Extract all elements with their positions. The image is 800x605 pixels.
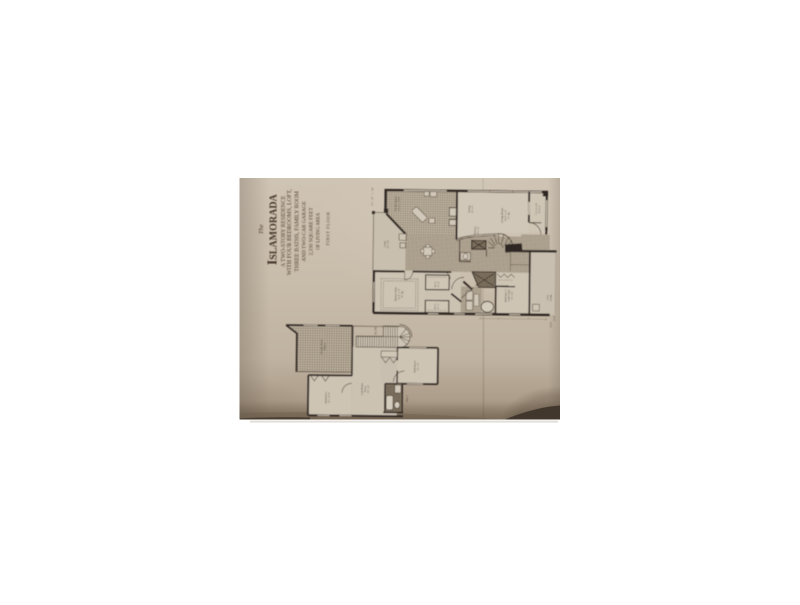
- svg-text:2-Car: 2-Car: [547, 295, 549, 300]
- svg-text:AND TWO-CAR GARAGE: AND TWO-CAR GARAGE: [302, 201, 308, 261]
- svg-text:11' x 11'-4": 11' x 11'-4": [328, 392, 331, 403]
- svg-text:FIRST FLOOR: FIRST FLOOR: [325, 211, 330, 245]
- svg-text:Below: Below: [323, 343, 326, 350]
- svg-text:10' clg.: 10' clg.: [401, 290, 404, 298]
- svg-text:22'-8": 22'-8": [553, 315, 556, 321]
- svg-text:OF LIVING AREA: OF LIVING AREA: [317, 212, 322, 250]
- svg-text:11' x 13': 11' x 13': [367, 385, 370, 394]
- svg-text:11' x 12': 11' x 12': [511, 291, 514, 300]
- svg-text:15'-4" x 17'-8": 15'-4" x 17'-8": [398, 196, 401, 211]
- svg-text:21'-4" x 10': 21'-4" x 10': [371, 186, 374, 206]
- svg-text:WITH FOUR BEDROOMS, LOFT,: WITH FOUR BEDROOMS, LOFT,: [287, 189, 293, 276]
- svg-text:Islamorada: Islamorada: [264, 193, 279, 265]
- svg-text:Dn 17R: Dn 17R: [374, 326, 377, 334]
- svg-text:21' x 10': 21' x 10': [387, 239, 390, 248]
- svg-text:W.I.C.: W.I.C.: [434, 281, 437, 288]
- svg-text:10'-0": 10'-0": [550, 322, 553, 328]
- svg-text:6' x 6': 6' x 6': [438, 281, 440, 287]
- svg-text:THREE BATHS, FAMILY ROOM: THREE BATHS, FAMILY ROOM: [295, 191, 301, 272]
- svg-text:10' x 11': 10' x 11': [471, 204, 474, 213]
- svg-text:W.I.C.: W.I.C.: [434, 303, 437, 310]
- svg-text:Bath 3: Bath 3: [406, 395, 409, 402]
- svg-text:11' x 11': 11' x 11': [417, 362, 420, 370]
- svg-text:12' clg.: 12' clg.: [507, 212, 510, 220]
- svg-text:Garage: Garage: [549, 294, 552, 301]
- svg-text:Entry: Entry: [538, 205, 541, 213]
- svg-text:6' x 5': 6' x 5': [438, 303, 440, 309]
- svg-text:10' x 12': 10' x 12': [477, 226, 480, 235]
- svg-text:2,330 SQUARE FEET: 2,330 SQUARE FEET: [309, 207, 315, 256]
